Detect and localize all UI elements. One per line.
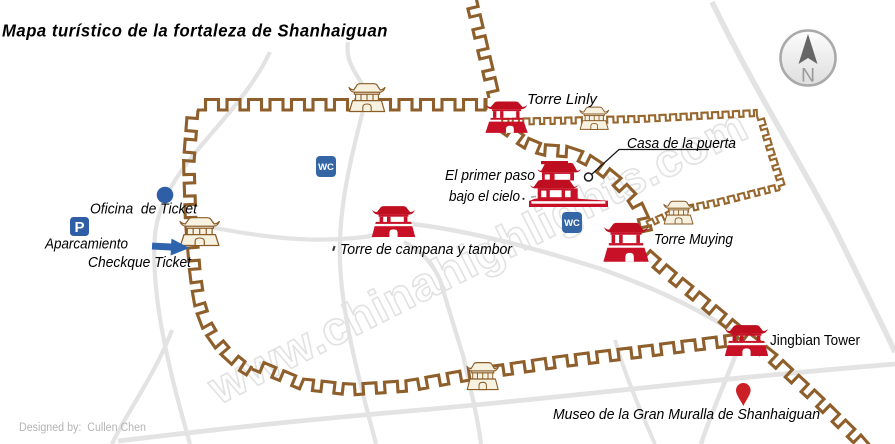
svg-text:Oficina de Ticket: Oficina de Ticket (90, 201, 198, 218)
svg-text:Mapa turístico de la fortaleza: Mapa turístico de la fortaleza de Shanha… (2, 20, 388, 40)
svg-text:Checkque Ticket: Checkque Ticket (88, 254, 192, 271)
svg-text:P: P (74, 219, 84, 236)
svg-text:Torre Linly: Torre Linly (527, 91, 599, 108)
svg-text:Aparcamiento: Aparcamiento (44, 236, 128, 253)
svg-text:Jingbian Tower: Jingbian Tower (770, 332, 860, 349)
svg-text:Casa de la puerta: Casa de la puerta (627, 135, 736, 152)
svg-text:N: N (801, 65, 815, 87)
svg-text:El primer paso: El primer paso (445, 167, 535, 184)
svg-text:Torre Muying: Torre Muying (654, 231, 734, 248)
svg-text:bajo el cielo: bajo el cielo (449, 188, 520, 205)
svg-text:Designed by: Cullen Chen: Designed by: Cullen Chen (19, 422, 146, 434)
svg-text:Museo de la Gran Muralla de Sh: Museo de la Gran Muralla de Shanhaiguan (553, 406, 820, 423)
svg-text:Torre de campana y tambor: Torre de campana y tambor (340, 241, 513, 258)
